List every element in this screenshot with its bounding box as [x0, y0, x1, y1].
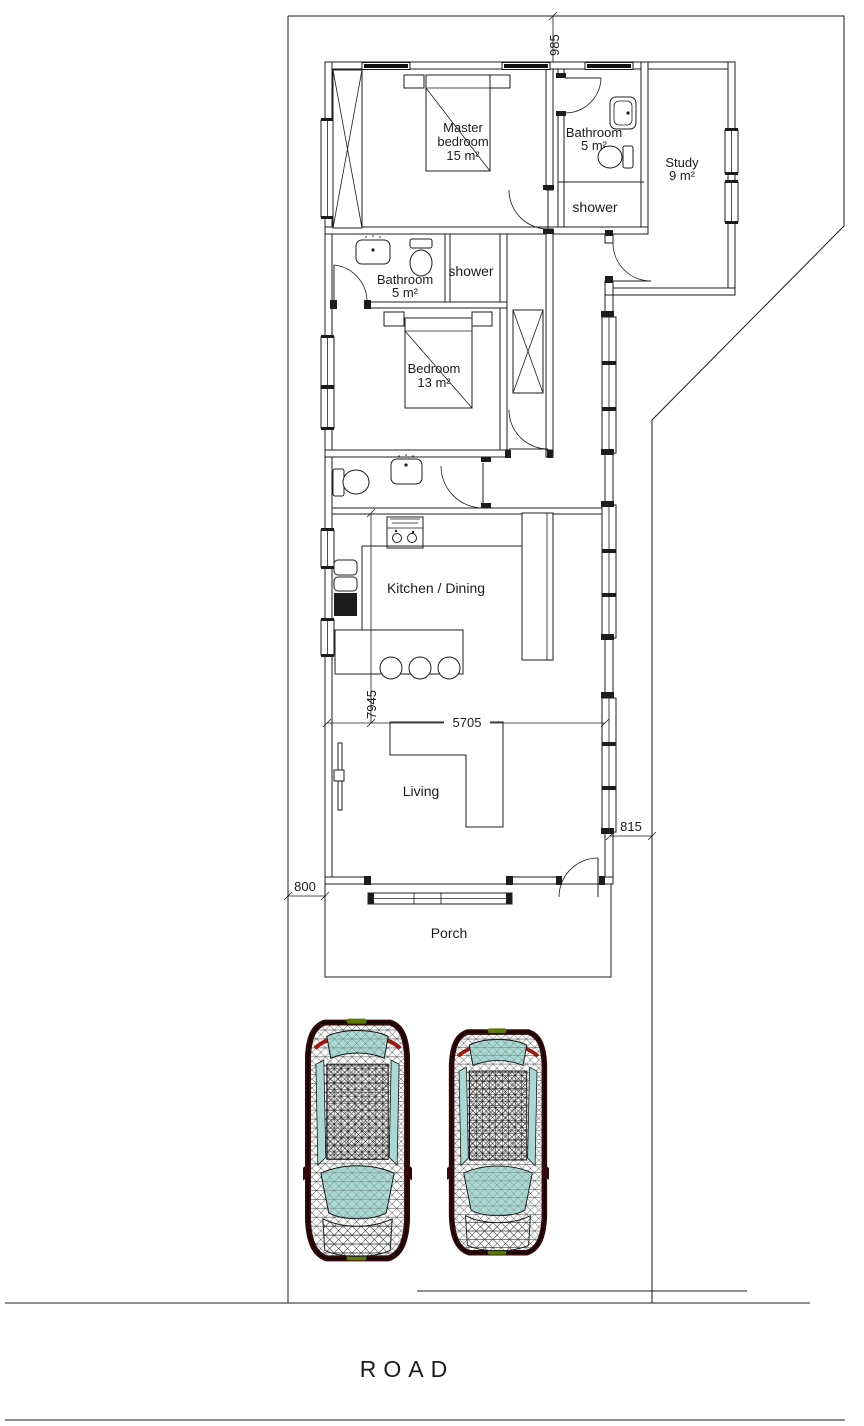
wall-segment: [500, 234, 507, 450]
car-2: [444, 1028, 552, 1254]
kitchen-island: [335, 630, 463, 679]
dimension-800: 800: [284, 879, 329, 900]
sink: [391, 454, 422, 484]
sofa: [390, 722, 503, 827]
window: [602, 317, 616, 453]
window: [321, 118, 334, 219]
door-bathroom-top: [565, 78, 601, 113]
room-label-porch: Porch: [431, 925, 468, 941]
window: [321, 528, 334, 569]
wall-segment: [325, 450, 509, 457]
wall-segment: [546, 229, 553, 450]
window: [321, 335, 334, 430]
road-label: ROAD: [360, 1356, 454, 1382]
wardrobe: [513, 310, 543, 393]
door-master-bedroom: [509, 190, 548, 229]
wall-segment: [728, 62, 735, 295]
wall-segment: [558, 113, 564, 234]
floor-plan-drawing: ROAD: [0, 0, 864, 1426]
window: [321, 618, 334, 657]
room-label-master-2: bedroom: [437, 134, 488, 149]
door-bathroom-mid: [334, 265, 367, 302]
counter-column: [522, 513, 553, 660]
window: [362, 63, 410, 70]
dimension-label: 800: [294, 879, 316, 894]
room-label-bathroom-mid-area: 5 m²: [392, 285, 419, 300]
dimension-7945: 7945: [364, 509, 379, 727]
wall-segment: [641, 62, 648, 234]
car-1: [300, 1019, 415, 1261]
window: [585, 63, 633, 70]
room-label-bedroom-area: 13 m²: [417, 375, 451, 390]
wall-segment: [332, 508, 613, 514]
wall-segment: [608, 288, 735, 295]
wall-segment: [546, 69, 553, 190]
bed: [384, 312, 492, 408]
toilet: [333, 469, 369, 496]
window: [502, 63, 550, 70]
door-wc: [441, 463, 483, 508]
wall-segment: [508, 877, 560, 884]
door-front-entry: [559, 858, 598, 897]
tv: [334, 743, 344, 810]
sliding-door: [368, 893, 512, 904]
toilet: [410, 239, 432, 276]
dimension-label: 5705: [453, 715, 482, 730]
window: [725, 128, 738, 175]
dimension-985: 985: [547, 12, 562, 62]
door-study-hall: [613, 243, 651, 281]
room-label-master-area: 15 m²: [446, 148, 480, 163]
room-label-bathroom-top-area: 5 m²: [581, 138, 608, 153]
dimension-label: 7945: [364, 690, 379, 719]
room-label-master-1: Master: [443, 120, 483, 135]
room-label-living: Living: [403, 783, 440, 799]
wall-segment: [605, 281, 613, 295]
room-label-shower-mid: shower: [448, 263, 493, 279]
sink: [356, 235, 390, 264]
stove: [387, 517, 423, 548]
floor-plan-page: ROAD: [0, 0, 864, 1426]
wall-segment: [325, 877, 370, 884]
furniture: [333, 70, 636, 904]
room-label-study-area: 9 m²: [669, 168, 696, 183]
door-bedroom: [509, 410, 548, 449]
road: ROAD: [5, 1291, 845, 1420]
wall-segment: [325, 227, 648, 234]
fridge: [334, 560, 357, 616]
walls: [325, 62, 735, 884]
room-label-bedroom: Bedroom: [408, 361, 461, 376]
dimension-label: 985: [547, 34, 562, 56]
room-label-shower-top: shower: [572, 199, 617, 215]
room-label-kitchen: Kitchen / Dining: [387, 580, 485, 596]
wardrobe: [333, 70, 362, 228]
window: [725, 180, 738, 224]
window: [602, 698, 616, 832]
cars: [300, 1019, 552, 1261]
wall-segment: [367, 302, 507, 308]
window: [602, 505, 616, 638]
dimension-label: 815: [620, 819, 642, 834]
